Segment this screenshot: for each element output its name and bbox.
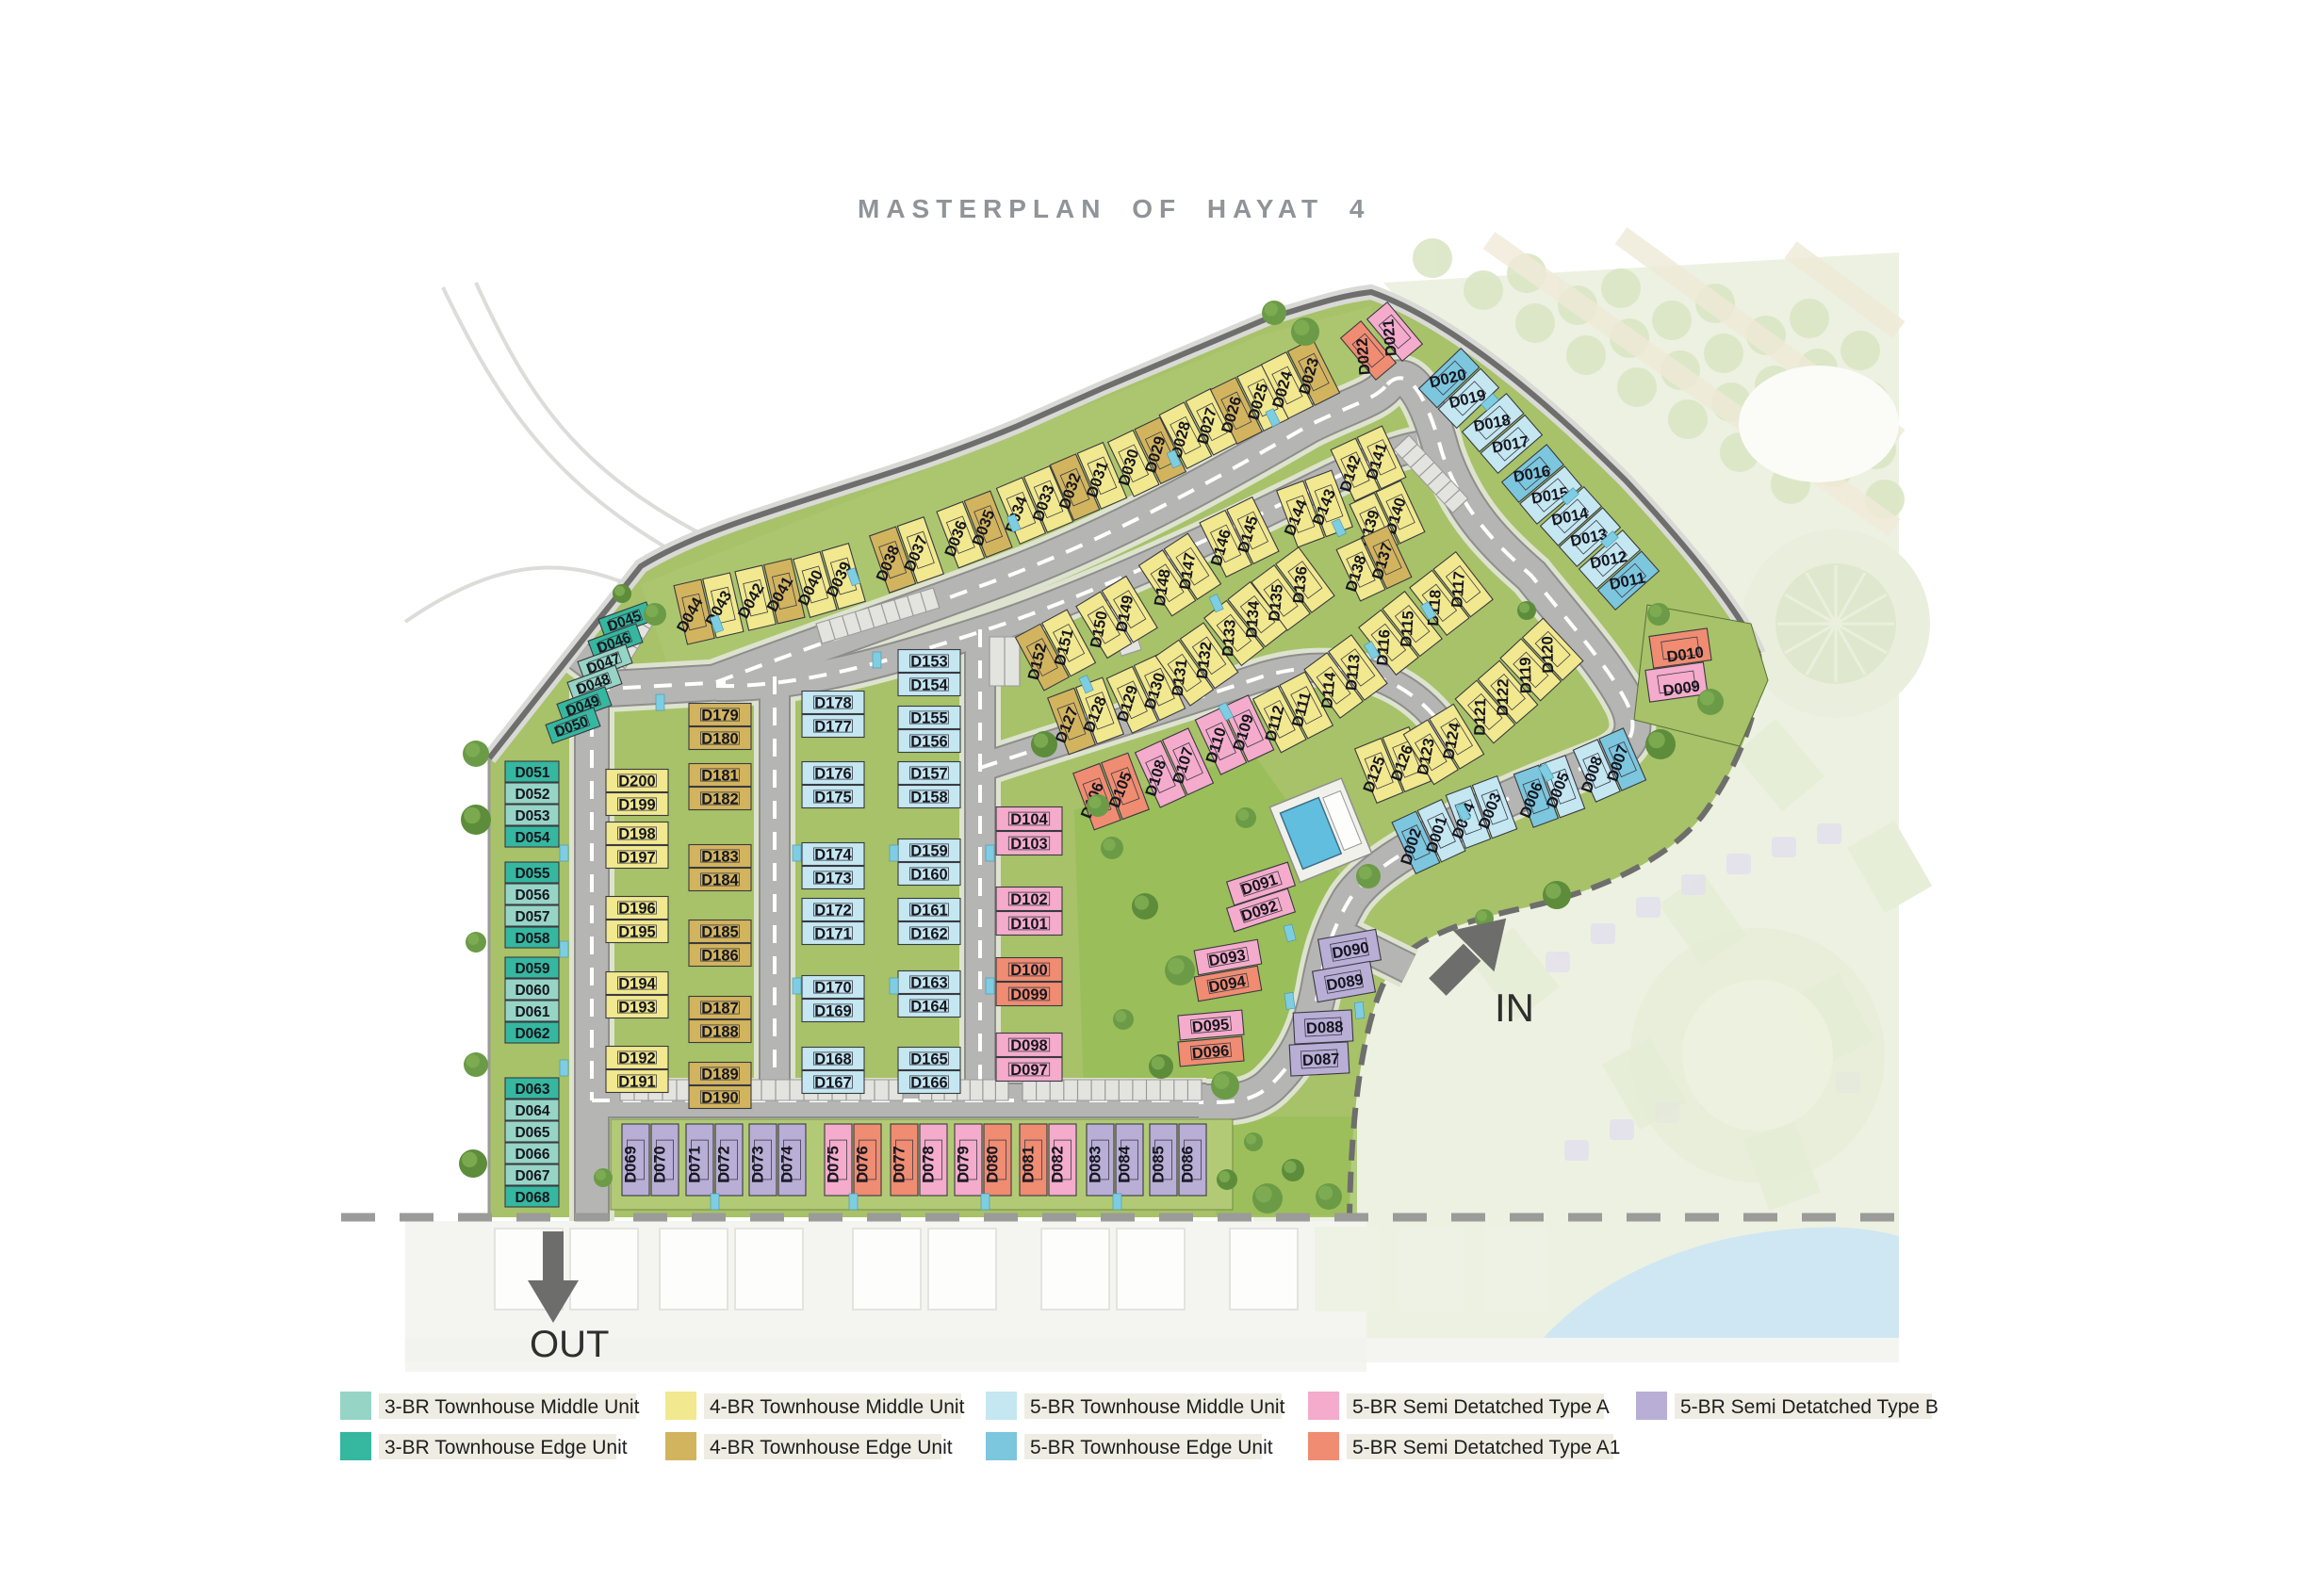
- svg-text:D114: D114: [1318, 671, 1339, 709]
- svg-text:D167: D167: [814, 1075, 851, 1092]
- svg-text:D163: D163: [910, 975, 947, 992]
- svg-text:D116: D116: [1374, 629, 1394, 667]
- svg-text:D085: D085: [1151, 1146, 1168, 1182]
- svg-text:D113: D113: [1343, 654, 1364, 692]
- svg-text:D067: D067: [515, 1168, 549, 1184]
- svg-text:OUT: OUT: [530, 1324, 609, 1365]
- svg-text:D156: D156: [910, 734, 947, 751]
- svg-text:5-BR Semi Detatched Type A: 5-BR Semi Detatched Type A: [1352, 1396, 1610, 1418]
- svg-text:D069: D069: [623, 1146, 640, 1182]
- svg-text:D058: D058: [515, 931, 549, 947]
- svg-text:D155: D155: [910, 710, 947, 727]
- svg-text:D088: D088: [1306, 1018, 1344, 1037]
- svg-text:D055: D055: [515, 866, 549, 882]
- svg-text:3-BR Townhouse Edge Unit: 3-BR Townhouse Edge Unit: [384, 1437, 628, 1458]
- svg-text:D103: D103: [1010, 836, 1047, 853]
- svg-text:D184: D184: [701, 872, 739, 889]
- svg-text:D056: D056: [515, 888, 549, 904]
- svg-text:4-BR Townhouse Middle Unit: 4-BR Townhouse Middle Unit: [710, 1396, 965, 1418]
- svg-text:D101: D101: [1010, 916, 1047, 933]
- svg-text:D171: D171: [814, 926, 851, 943]
- svg-text:D166: D166: [910, 1075, 947, 1092]
- svg-text:D158: D158: [910, 790, 947, 806]
- svg-text:D160: D160: [910, 867, 947, 884]
- svg-text:D186: D186: [701, 948, 738, 965]
- svg-text:D070: D070: [652, 1146, 669, 1182]
- svg-text:D096: D096: [1191, 1042, 1230, 1062]
- svg-text:D194: D194: [618, 976, 656, 993]
- svg-text:D154: D154: [910, 677, 948, 694]
- svg-text:D104: D104: [1010, 811, 1048, 828]
- svg-text:D080: D080: [985, 1146, 1002, 1182]
- svg-text:D095: D095: [1191, 1016, 1230, 1035]
- svg-text:D063: D063: [515, 1082, 549, 1098]
- svg-text:D099: D099: [1010, 986, 1047, 1003]
- svg-text:D076: D076: [855, 1146, 872, 1182]
- svg-text:D174: D174: [814, 847, 852, 864]
- svg-text:D195: D195: [618, 924, 655, 941]
- svg-text:D077: D077: [892, 1146, 908, 1182]
- svg-text:D133: D133: [1219, 619, 1239, 658]
- svg-text:D168: D168: [814, 1051, 851, 1068]
- svg-text:D021: D021: [1380, 318, 1399, 357]
- svg-text:D073: D073: [750, 1146, 767, 1182]
- svg-text:D165: D165: [910, 1051, 947, 1068]
- svg-text:5-BR Townhouse Middle Unit: 5-BR Townhouse Middle Unit: [1030, 1396, 1285, 1418]
- svg-text:D192: D192: [618, 1050, 655, 1067]
- svg-text:D159: D159: [910, 843, 947, 860]
- svg-text:D081: D081: [1021, 1146, 1038, 1182]
- svg-text:D200: D200: [618, 774, 655, 790]
- svg-text:D072: D072: [716, 1146, 733, 1182]
- svg-text:D052: D052: [515, 787, 549, 803]
- svg-text:D086: D086: [1180, 1146, 1197, 1182]
- svg-text:D062: D062: [515, 1026, 549, 1042]
- svg-text:D182: D182: [701, 791, 738, 808]
- svg-text:D175: D175: [814, 790, 851, 806]
- svg-text:D161: D161: [910, 903, 947, 920]
- svg-text:D198: D198: [618, 826, 655, 843]
- svg-text:D102: D102: [1010, 891, 1047, 908]
- svg-text:D189: D189: [701, 1067, 738, 1083]
- svg-text:5-BR Semi Detatched Type A1: 5-BR Semi Detatched Type A1: [1352, 1437, 1620, 1458]
- svg-text:D199: D199: [618, 797, 655, 814]
- svg-text:D098: D098: [1010, 1037, 1047, 1054]
- svg-text:D169: D169: [814, 1003, 851, 1020]
- svg-text:D100: D100: [1010, 962, 1047, 979]
- svg-text:D097: D097: [1010, 1062, 1047, 1079]
- svg-text:D121: D121: [1472, 698, 1490, 736]
- svg-text:D078: D078: [921, 1146, 938, 1182]
- svg-text:D051: D051: [515, 765, 549, 781]
- svg-text:D068: D068: [515, 1190, 549, 1206]
- svg-text:D022: D022: [1353, 337, 1373, 376]
- svg-text:D136: D136: [1290, 565, 1311, 604]
- svg-text:D185: D185: [701, 924, 738, 941]
- svg-text:D196: D196: [618, 901, 655, 918]
- svg-text:D164: D164: [910, 999, 948, 1016]
- svg-text:D183: D183: [701, 849, 738, 866]
- svg-text:D134: D134: [1243, 599, 1263, 638]
- svg-text:D066: D066: [515, 1147, 549, 1163]
- svg-text:D053: D053: [515, 808, 549, 824]
- svg-text:D084: D084: [1117, 1145, 1134, 1182]
- svg-text:5-BR Semi Detatched Type B: 5-BR Semi Detatched Type B: [1680, 1396, 1939, 1418]
- svg-text:D172: D172: [814, 903, 851, 920]
- svg-text:D060: D060: [515, 983, 549, 999]
- svg-text:D087: D087: [1302, 1050, 1340, 1069]
- svg-text:D065: D065: [515, 1125, 549, 1141]
- svg-text:IN: IN: [1495, 985, 1534, 1030]
- svg-text:D187: D187: [701, 1001, 738, 1018]
- svg-text:D117: D117: [1448, 571, 1468, 609]
- svg-text:D170: D170: [814, 980, 851, 997]
- svg-text:D177: D177: [814, 719, 851, 736]
- svg-text:5-BR Townhouse Edge Unit: 5-BR Townhouse Edge Unit: [1030, 1437, 1273, 1458]
- svg-text:D176: D176: [814, 766, 851, 783]
- svg-text:D179: D179: [701, 708, 738, 725]
- svg-text:D193: D193: [618, 1000, 655, 1017]
- svg-text:3-BR Townhouse Middle Unit: 3-BR Townhouse Middle Unit: [384, 1396, 640, 1418]
- svg-text:D135: D135: [1266, 583, 1286, 622]
- svg-text:D079: D079: [956, 1146, 973, 1182]
- svg-text:D083: D083: [1088, 1146, 1104, 1182]
- svg-text:D162: D162: [910, 926, 947, 943]
- svg-text:D082: D082: [1050, 1146, 1067, 1182]
- svg-text:D190: D190: [701, 1090, 738, 1107]
- svg-text:D120: D120: [1539, 636, 1557, 674]
- svg-text:D180: D180: [701, 731, 738, 748]
- svg-text:D153: D153: [910, 654, 947, 671]
- svg-text:D115: D115: [1398, 611, 1417, 648]
- svg-text:4-BR Townhouse Edge Unit: 4-BR Townhouse Edge Unit: [710, 1437, 953, 1458]
- svg-text:D061: D061: [515, 1004, 549, 1020]
- svg-text:MASTERPLAN OF HAYAT 4: MASTERPLAN OF HAYAT 4: [858, 194, 1370, 223]
- svg-text:D059: D059: [515, 961, 549, 977]
- svg-text:D173: D173: [814, 871, 851, 888]
- svg-text:D197: D197: [618, 850, 655, 867]
- svg-text:D054: D054: [515, 830, 549, 846]
- svg-text:D071: D071: [687, 1146, 704, 1182]
- svg-text:D191: D191: [618, 1074, 655, 1091]
- svg-text:D122: D122: [1495, 678, 1513, 716]
- svg-text:D074: D074: [779, 1145, 796, 1182]
- svg-text:D178: D178: [814, 695, 851, 712]
- svg-text:D119: D119: [1517, 657, 1535, 693]
- svg-text:D188: D188: [701, 1024, 738, 1041]
- svg-text:D157: D157: [910, 766, 947, 783]
- svg-text:D064: D064: [515, 1103, 549, 1119]
- svg-text:D181: D181: [701, 768, 738, 785]
- svg-text:D075: D075: [826, 1146, 842, 1182]
- svg-text:D057: D057: [515, 909, 549, 925]
